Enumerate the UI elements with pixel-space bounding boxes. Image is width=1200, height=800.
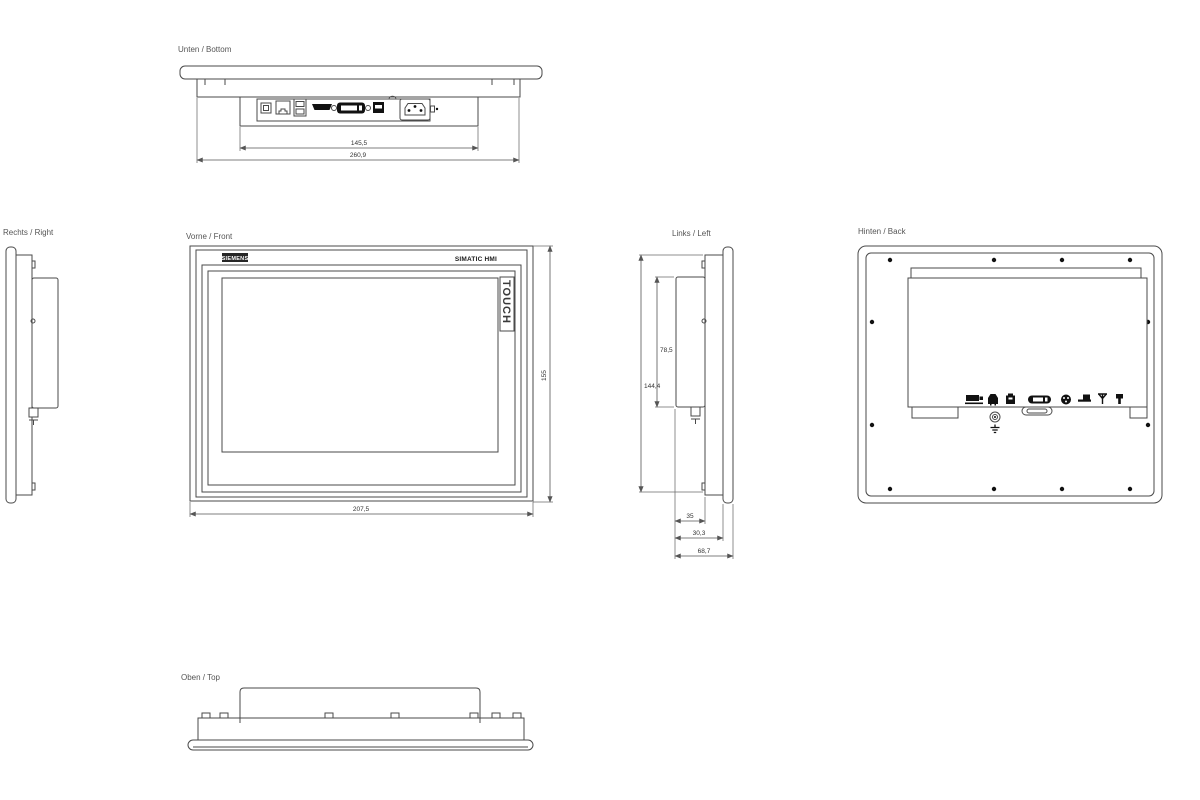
back-dvi-cutout — [1022, 407, 1052, 415]
siemens-logo: SIEMENS — [222, 253, 249, 262]
left-rear-box — [676, 277, 705, 407]
left-total-depth-dim: 68,7 — [698, 548, 711, 555]
left-mid-depth-dim: 30,3 — [693, 530, 706, 537]
top-bezel — [188, 740, 533, 750]
left-latch — [691, 407, 700, 424]
left-body — [705, 255, 723, 495]
back-view-label: Hinten / Back — [858, 227, 907, 236]
front-width-dim: 207,5 — [353, 506, 370, 513]
ground-terminal-icon — [990, 412, 1000, 433]
dvi-port-icon — [332, 103, 371, 114]
hdmi-port-icon — [312, 104, 332, 110]
left-view: Links / Left 144,4 78,5 — [639, 229, 733, 559]
bottom-view: Unten / Bottom — [178, 45, 542, 163]
bottom-connector-width-dim: 145,5 — [351, 140, 368, 147]
top-rear-box — [240, 688, 480, 718]
back-tab-left — [912, 407, 958, 418]
left-box-depth-dim: 35 — [686, 513, 694, 520]
right-bezel — [6, 247, 16, 503]
right-view: Rechts / Right — [3, 228, 58, 503]
touch-label: TOUCH — [500, 280, 512, 324]
usb-port-icon — [373, 102, 384, 113]
top-body — [198, 718, 524, 740]
drawing-sheet: Unten / Bottom — [0, 0, 1200, 800]
front-view-label: Vorne / Front — [186, 232, 233, 241]
front-view: Vorne / Front SIEMENS SIMATIC HMI TOUCH … — [186, 232, 553, 517]
right-body — [16, 255, 32, 495]
siemens-logo-text: SIEMENS — [222, 256, 249, 262]
back-view: Hinten / Back — [858, 227, 1162, 503]
back-housing-lip — [911, 268, 1141, 279]
touch-strip: TOUCH — [500, 277, 514, 331]
back-tab-right — [1130, 407, 1147, 418]
bottom-view-label: Unten / Bottom — [178, 45, 232, 54]
bottom-overall-width-dim: 260,9 — [350, 152, 367, 159]
right-rear-box — [32, 278, 58, 408]
simatic-hmi-label: SIMATIC HMI — [455, 256, 497, 263]
front-screen — [222, 278, 498, 452]
left-box-height-dim: 78,5 — [660, 347, 673, 354]
dimensional-drawing: Unten / Bottom — [0, 0, 1200, 800]
front-height-dim: 155 — [541, 370, 548, 381]
left-bezel — [723, 247, 733, 503]
left-body-height-dim: 144,4 — [644, 383, 661, 390]
ethernet-port-icon — [988, 394, 998, 406]
bottom-bezel — [180, 66, 542, 79]
top-view-label: Oben / Top — [181, 673, 221, 682]
left-view-label: Links / Left — [672, 229, 711, 238]
right-view-label: Rechts / Right — [3, 228, 54, 237]
top-view: Oben / Top — [181, 673, 533, 750]
bottom-body — [197, 79, 520, 97]
round-connector-icon — [1061, 395, 1071, 405]
back-housing — [908, 278, 1147, 407]
dvi-port-icon — [1028, 396, 1051, 404]
